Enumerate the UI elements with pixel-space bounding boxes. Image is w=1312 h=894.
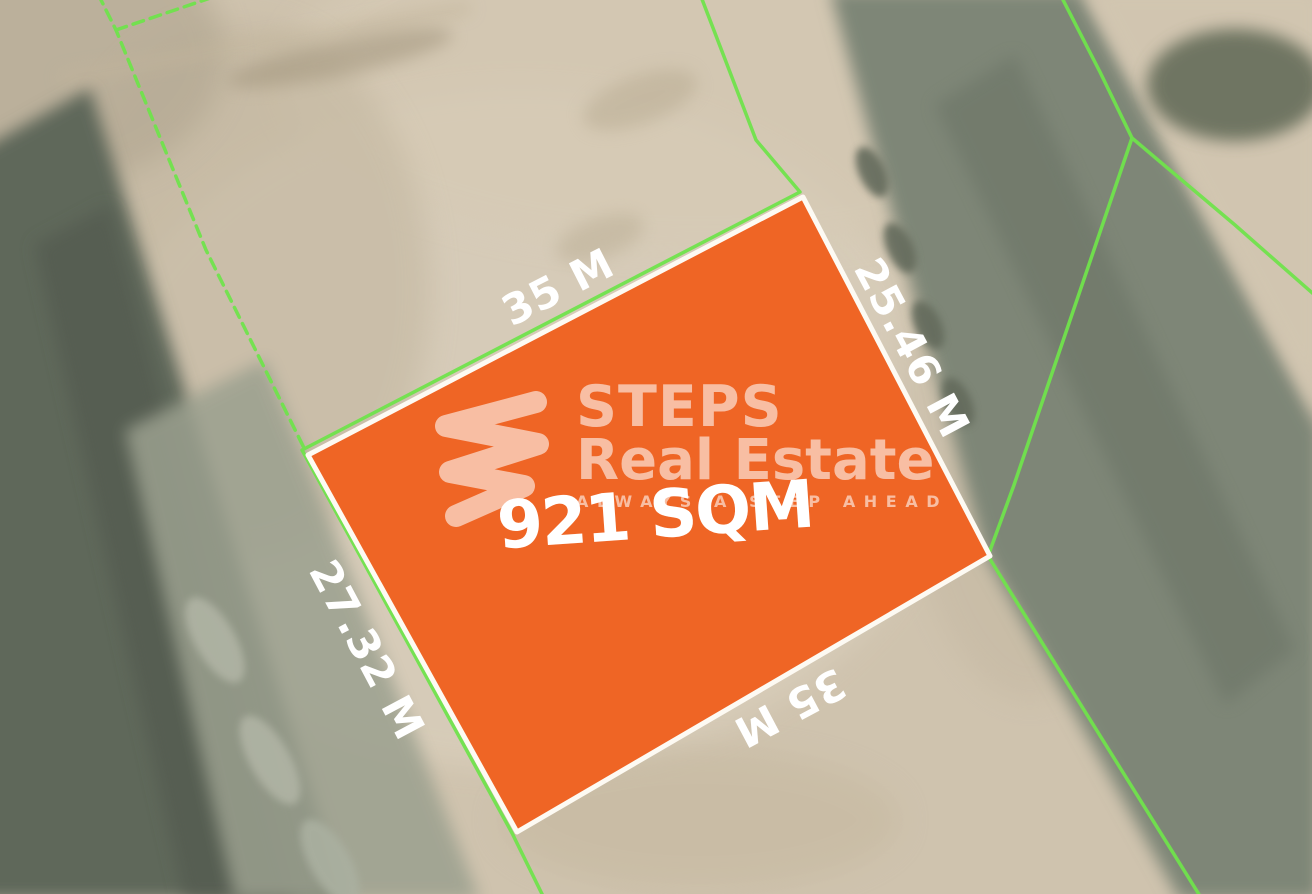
brand-name-line1: STEPS: [576, 380, 948, 434]
satellite-plot-image: STEPS Real Estate ALWAYS A STEP AHEAD 92…: [0, 0, 1312, 894]
